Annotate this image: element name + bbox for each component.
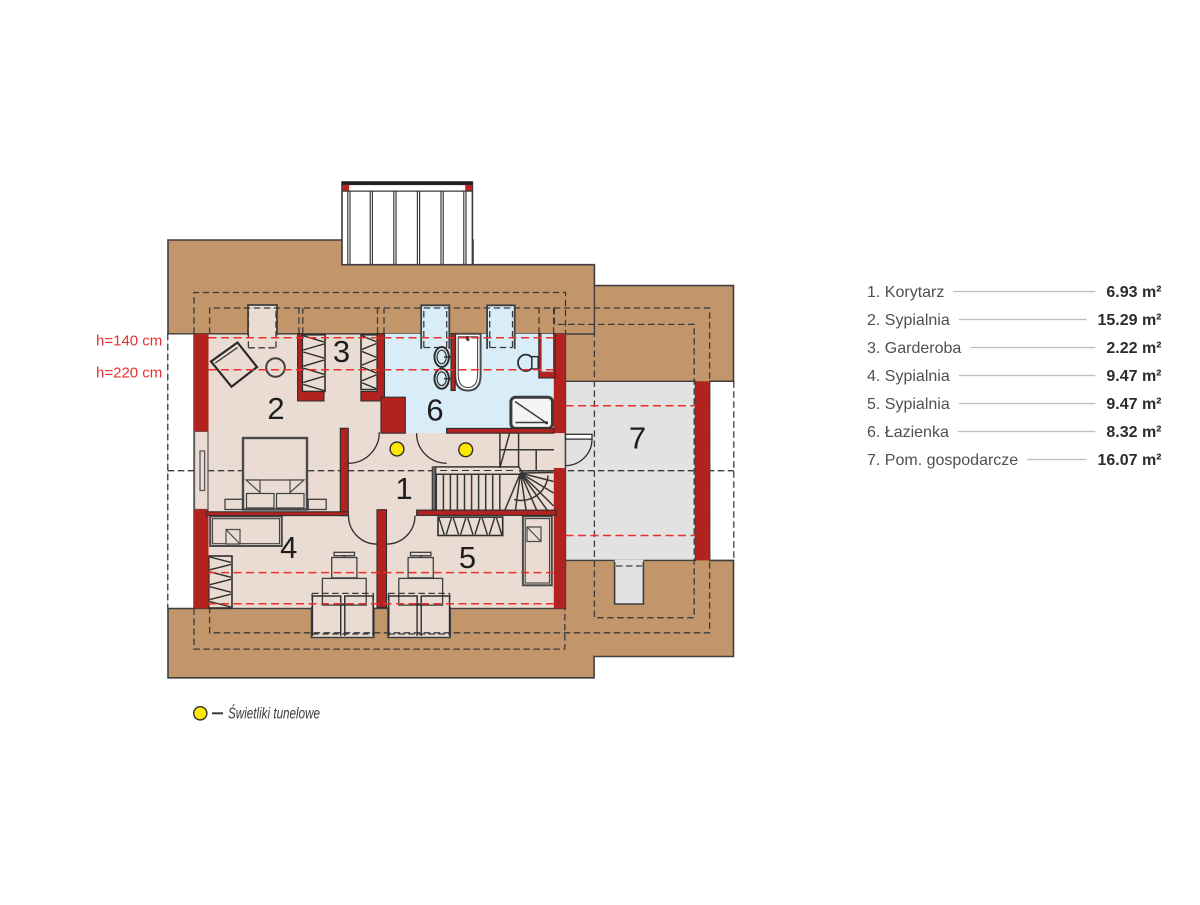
svg-text:2: 2: [267, 391, 284, 426]
svg-text:Świetliki tunelowe: Świetliki tunelowe: [228, 705, 320, 723]
svg-text:2. Sypialnia: 2. Sypialnia: [867, 312, 950, 329]
svg-text:4. Sypialnia: 4. Sypialnia: [867, 368, 950, 385]
svg-text:3. Garderoba: 3. Garderoba: [867, 340, 961, 357]
svg-text:6.93 m²: 6.93 m²: [1106, 284, 1161, 301]
svg-text:7: 7: [629, 421, 646, 456]
svg-text:16.07 m²: 16.07 m²: [1097, 452, 1161, 469]
svg-text:5: 5: [459, 540, 476, 575]
svg-text:h=140 cm: h=140 cm: [96, 333, 162, 350]
svg-text:6: 6: [426, 393, 443, 428]
svg-text:5. Sypialnia: 5. Sypialnia: [867, 396, 950, 413]
svg-text:h=220 cm: h=220 cm: [96, 365, 162, 382]
svg-text:9.47 m²: 9.47 m²: [1106, 368, 1161, 385]
svg-text:7. Pom. gospodarcze: 7. Pom. gospodarcze: [867, 452, 1018, 469]
svg-text:15.29 m²: 15.29 m²: [1097, 312, 1161, 329]
svg-text:3: 3: [333, 334, 350, 369]
svg-text:8.32 m²: 8.32 m²: [1106, 424, 1161, 441]
svg-text:9.47 m²: 9.47 m²: [1106, 396, 1161, 413]
svg-text:6. Łazienka: 6. Łazienka: [867, 424, 949, 441]
svg-text:4: 4: [280, 530, 297, 565]
svg-text:1: 1: [395, 471, 412, 506]
svg-text:1. Korytarz: 1. Korytarz: [867, 284, 944, 301]
svg-text:2.22 m²: 2.22 m²: [1106, 340, 1161, 357]
